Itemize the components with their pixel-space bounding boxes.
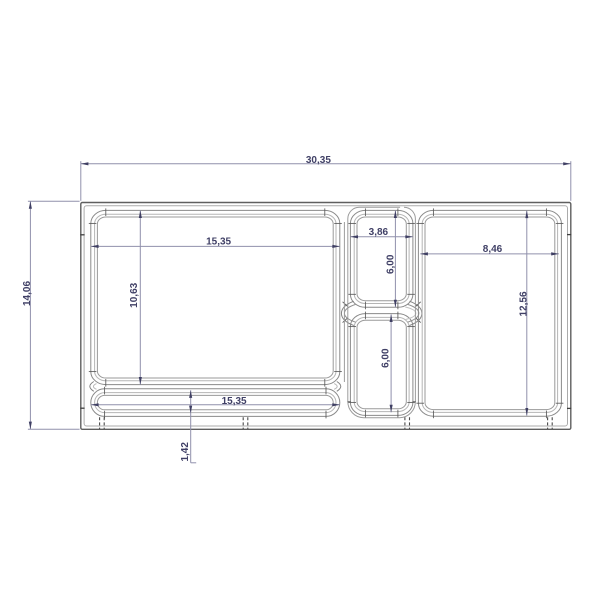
svg-text:15,35: 15,35 xyxy=(222,396,247,407)
svg-text:10,63: 10,63 xyxy=(129,282,140,307)
svg-text:6,00: 6,00 xyxy=(381,348,392,368)
svg-text:30,35: 30,35 xyxy=(306,155,331,166)
svg-text:15,35: 15,35 xyxy=(206,237,231,248)
svg-text:8,46: 8,46 xyxy=(483,244,503,255)
svg-text:1,42: 1,42 xyxy=(180,442,191,462)
svg-text:14,06: 14,06 xyxy=(22,281,33,306)
svg-text:12,56: 12,56 xyxy=(518,291,529,316)
svg-text:3,86: 3,86 xyxy=(369,227,389,238)
svg-text:6,00: 6,00 xyxy=(385,254,396,274)
